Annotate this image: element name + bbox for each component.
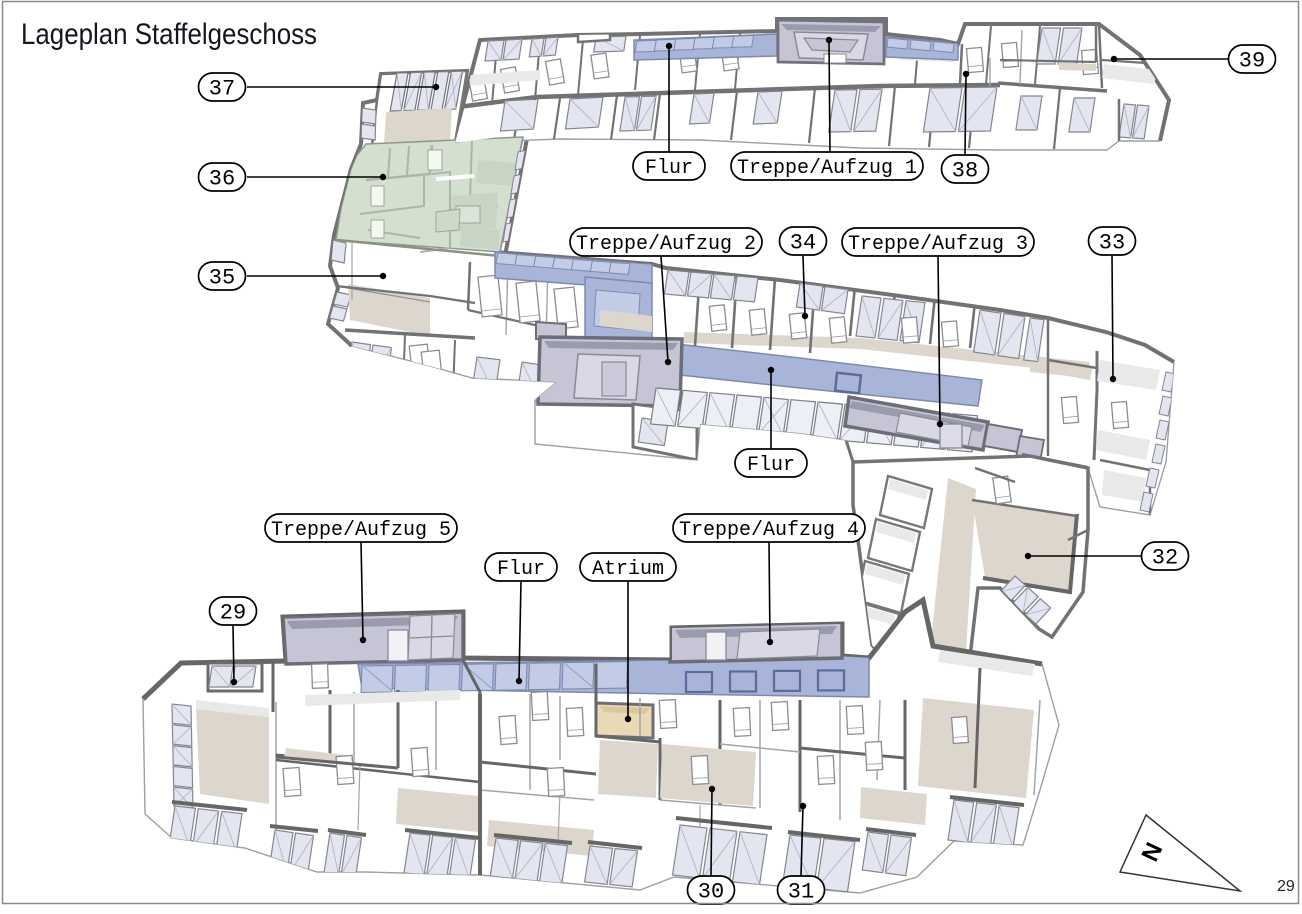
svg-text:29: 29 [220,601,246,626]
svg-text:33: 33 [1099,231,1125,256]
svg-text:31: 31 [788,880,814,905]
svg-text:Treppe/Aufzug 4: Treppe/Aufzug 4 [679,519,859,542]
svg-text:38: 38 [952,159,978,184]
svg-text:Atrium: Atrium [592,558,664,581]
svg-text:Flur: Flur [747,454,795,477]
svg-text:36: 36 [209,167,235,192]
svg-text:30: 30 [698,880,724,905]
svg-text:35: 35 [209,266,235,291]
svg-text:Lageplan Staffelgeschoss: Lageplan Staffelgeschoss [21,18,317,51]
svg-text:Flur: Flur [645,157,693,180]
svg-text:Treppe/Aufzug 1: Treppe/Aufzug 1 [737,157,917,180]
svg-text:Treppe/Aufzug 2: Treppe/Aufzug 2 [576,233,756,256]
svg-text:39: 39 [1239,49,1265,74]
svg-text:29: 29 [1277,878,1295,895]
svg-text:Flur: Flur [497,558,545,581]
svg-text:37: 37 [209,77,235,102]
svg-text:34: 34 [790,231,816,256]
svg-text:32: 32 [1152,546,1178,571]
svg-text:Treppe/Aufzug 5: Treppe/Aufzug 5 [271,519,451,542]
svg-text:Treppe/Aufzug 3: Treppe/Aufzug 3 [848,233,1028,256]
